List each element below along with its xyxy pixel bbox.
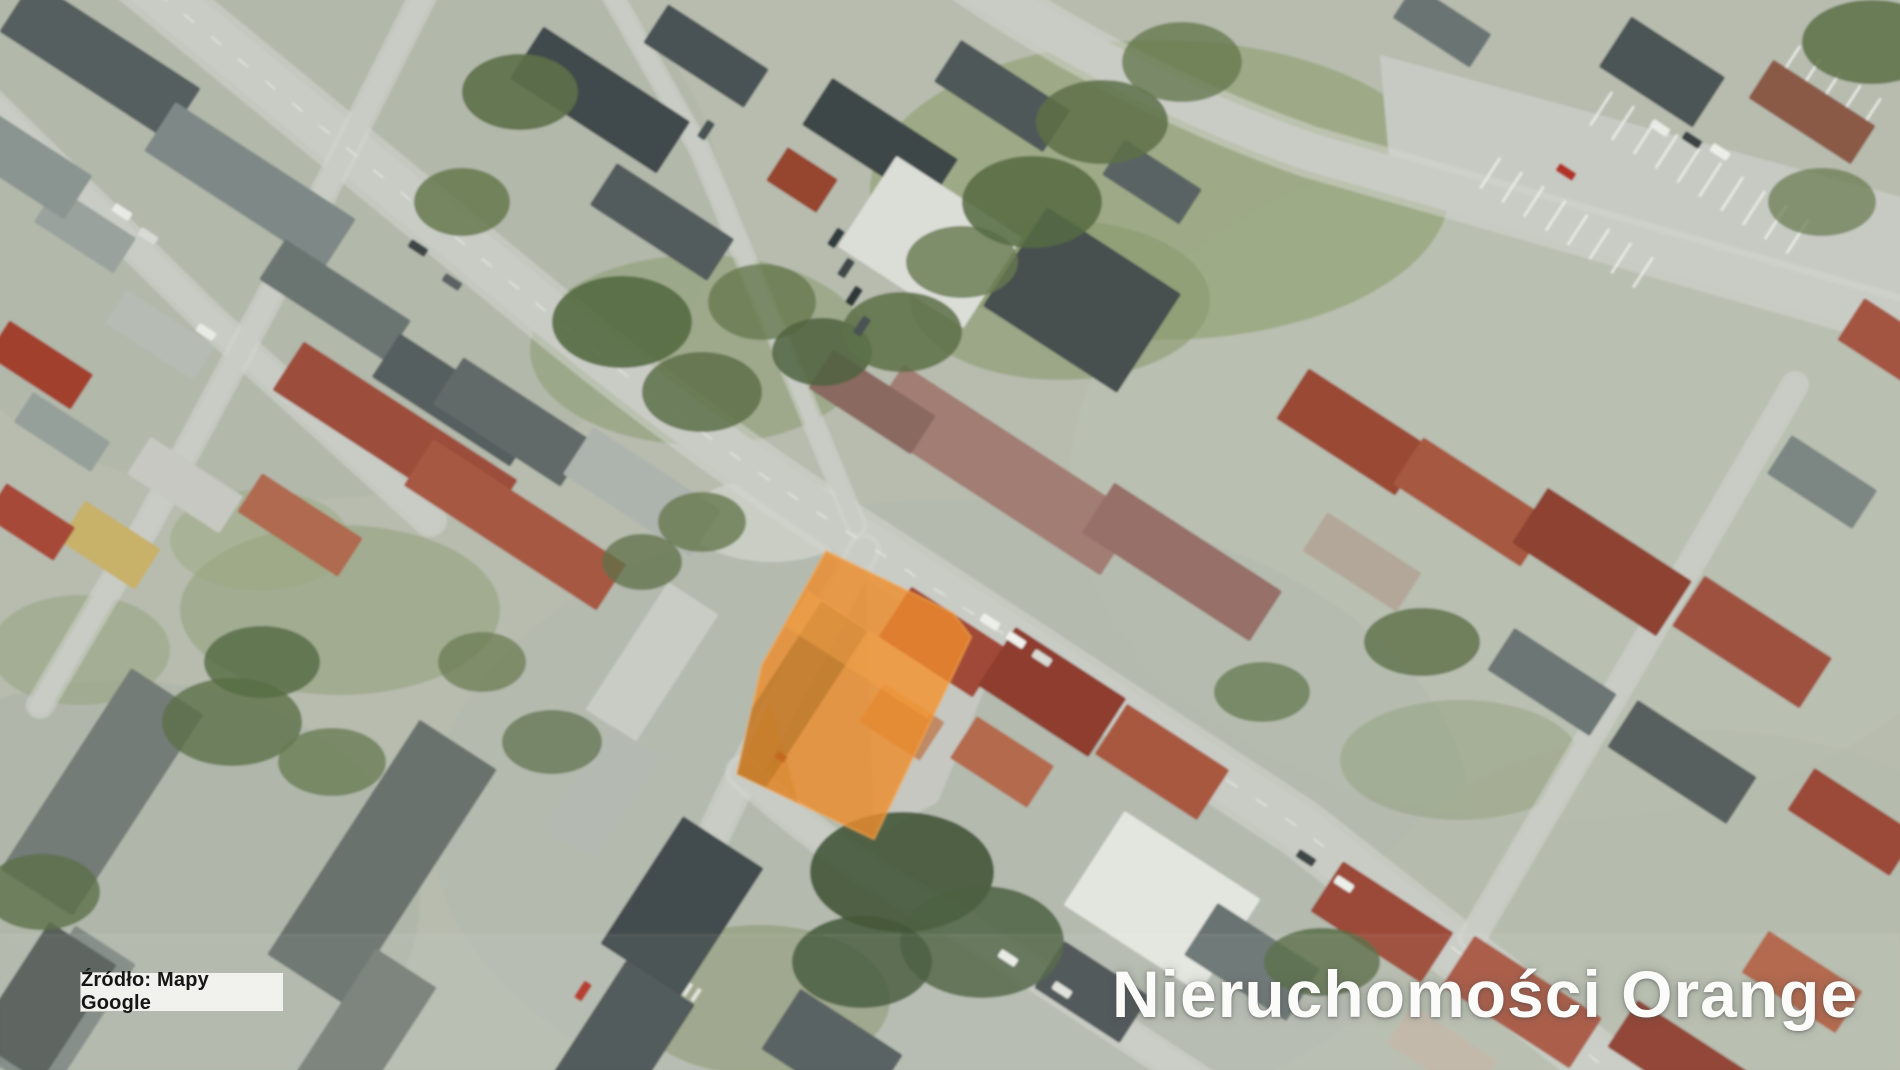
tree — [642, 352, 762, 432]
brand-watermark-text: Nieruchomości Orange — [1112, 957, 1858, 1031]
tree — [962, 156, 1102, 248]
tree — [278, 728, 386, 796]
tree — [502, 710, 602, 774]
tree — [462, 54, 578, 130]
map-source-label: Źródło: Mapy Google — [80, 972, 284, 1012]
map-source-text: Źródło: Mapy Google — [81, 969, 283, 1015]
tree — [414, 168, 510, 236]
tree — [438, 632, 526, 692]
tree — [1364, 608, 1480, 676]
tree — [552, 276, 692, 368]
tree — [204, 626, 320, 698]
brand-watermark: Nieruchomości Orange — [1112, 961, 1858, 1027]
aerial-map-canvas: Źródło: Mapy Google Nieruchomości Orange — [0, 0, 1900, 1070]
tree — [1214, 662, 1310, 722]
tree — [602, 534, 682, 590]
tree — [1122, 22, 1242, 102]
aerial-map — [0, 0, 1900, 1070]
tree — [1768, 168, 1876, 236]
